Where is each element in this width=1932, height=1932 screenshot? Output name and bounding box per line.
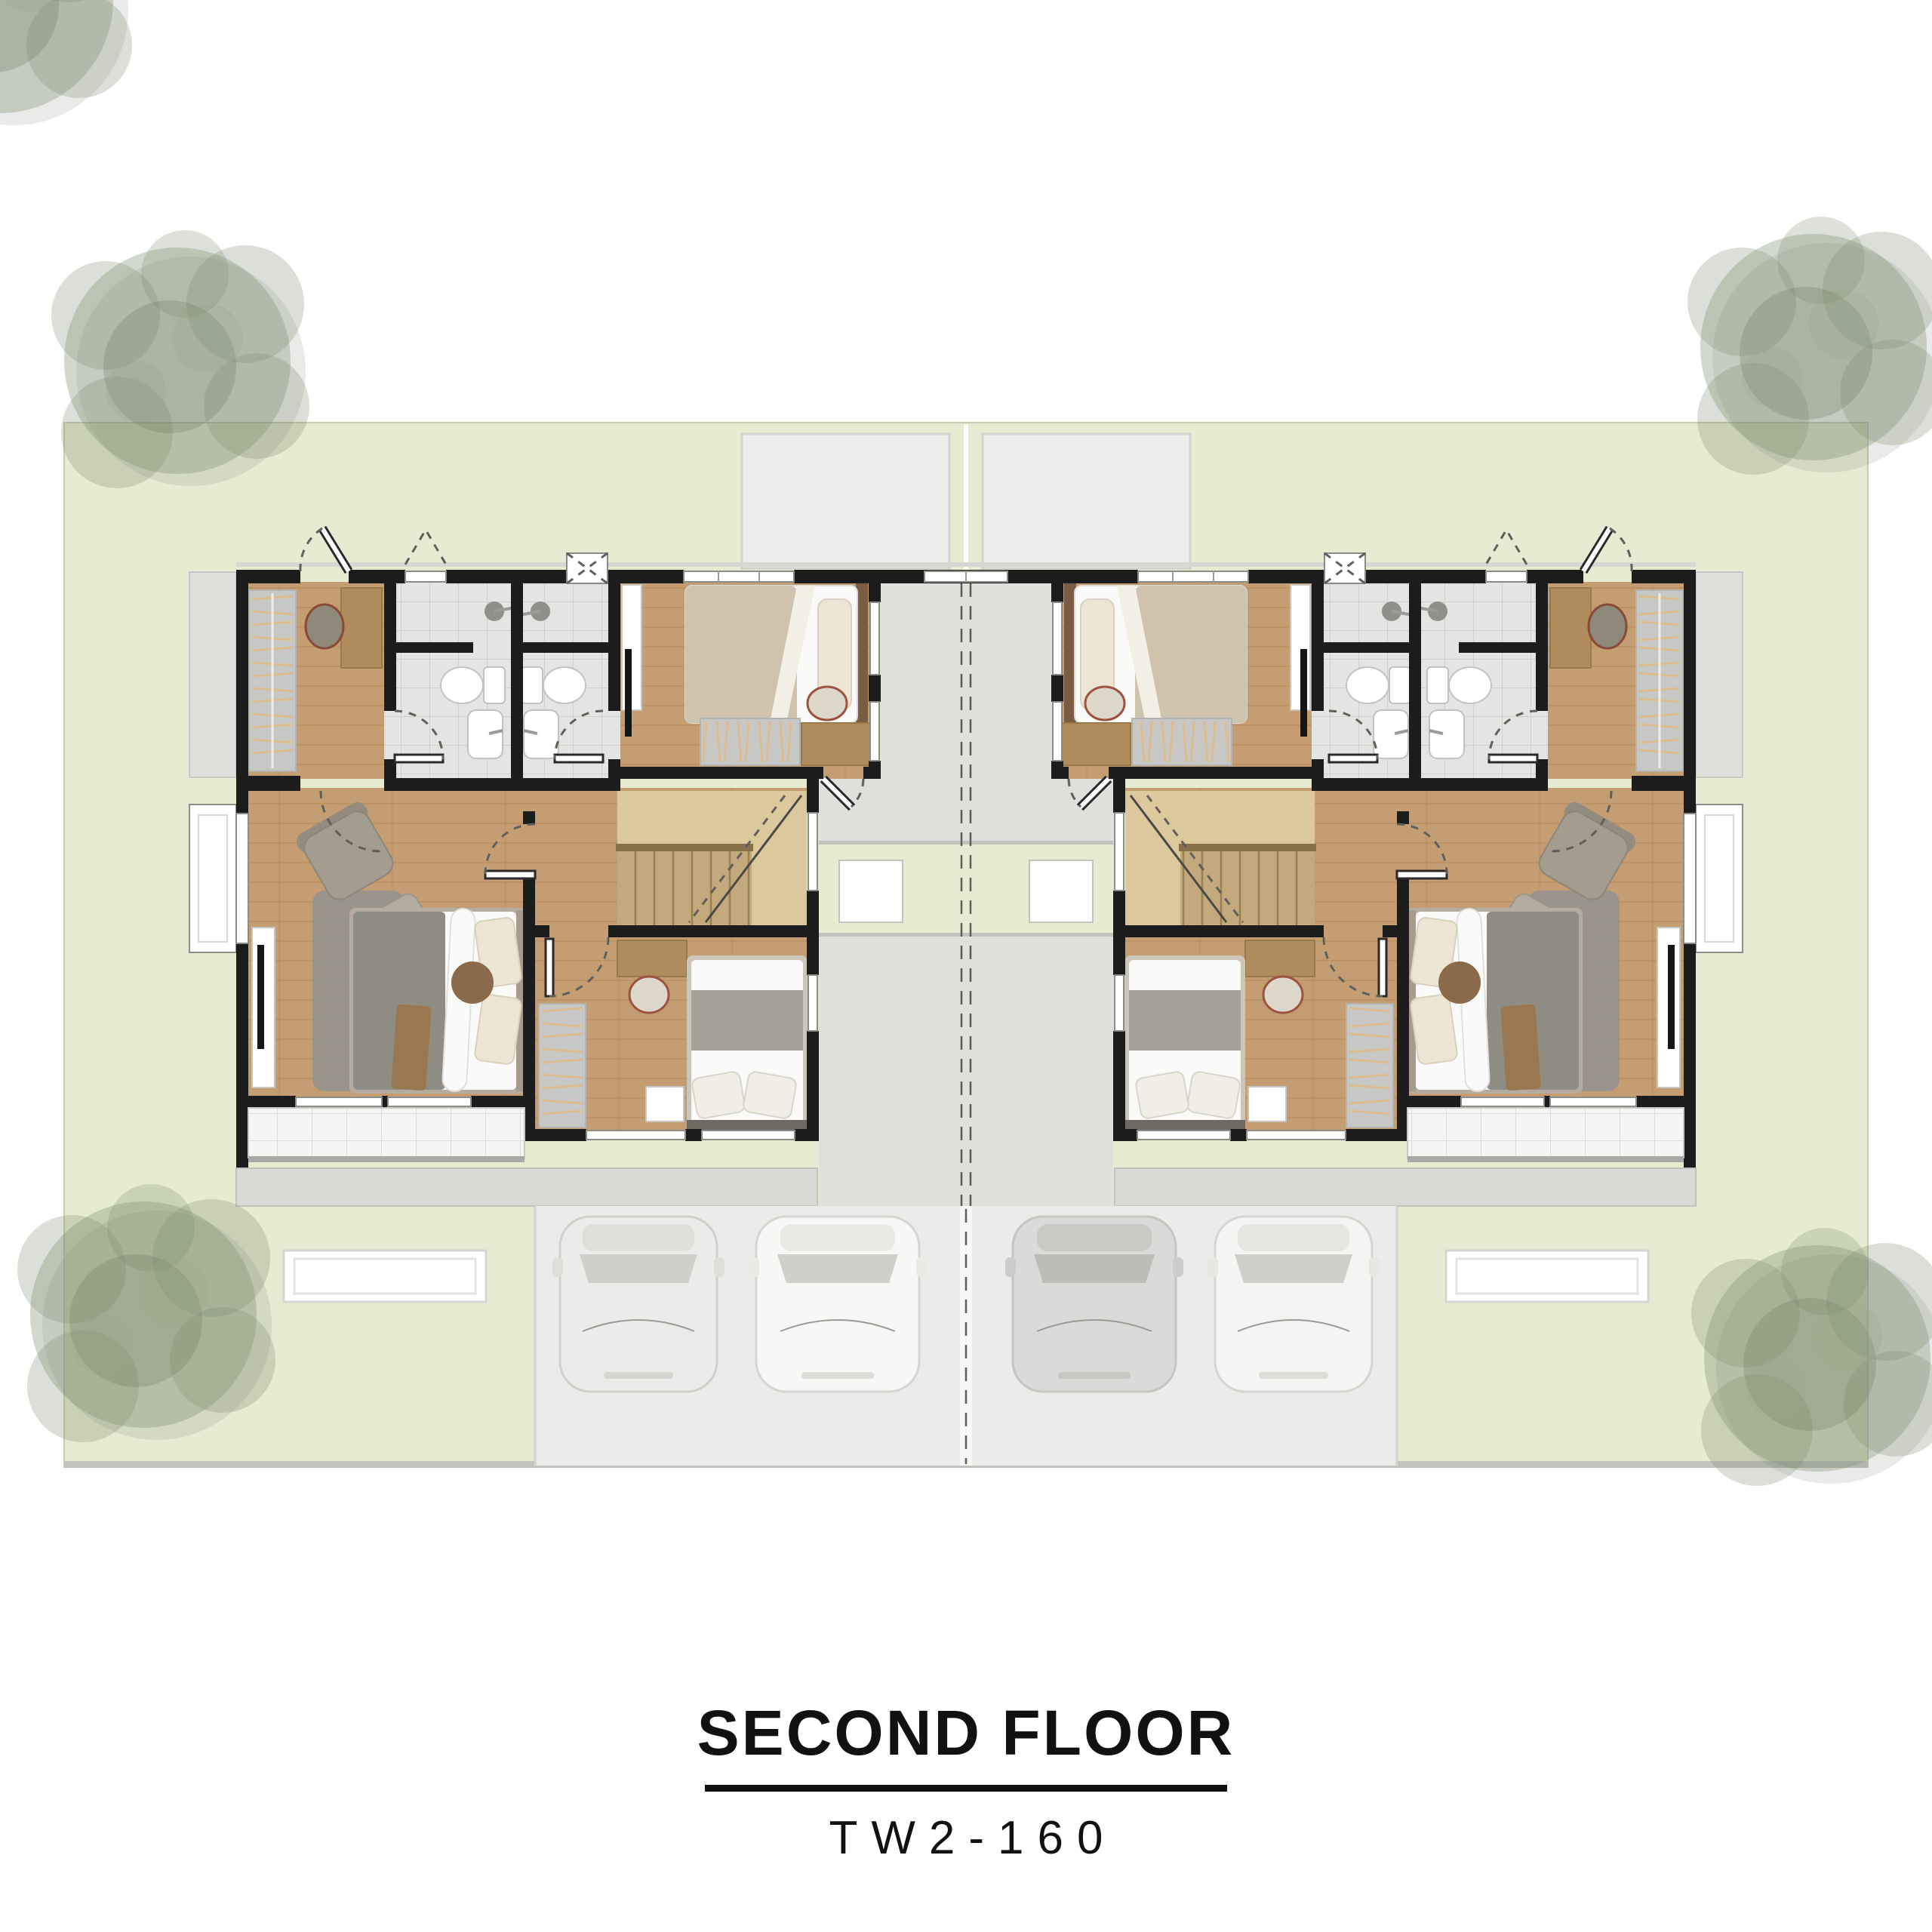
title-divider [705,1785,1227,1792]
bedroom3-wardrobe [539,1004,586,1128]
garden-planter-inner [294,1259,475,1294]
car-3 [1005,1217,1183,1392]
ground-awning [236,1168,817,1206]
stair-railing [616,844,753,851]
bedroom3-pillow-2 [743,1071,797,1119]
tree-bottom-left [17,1184,275,1442]
ac-condenser-pad-left [839,860,903,922]
tree [0,0,132,128]
bedroom3-nightstand [646,1087,684,1121]
car-2 [749,1217,927,1392]
bedroom2-side-window-1 [870,602,879,675]
master-door-leaf [485,871,535,878]
toilet-bowl-bath1 [441,667,483,703]
toilet-tank-bath2 [521,667,543,703]
master-terrace-window-1 [296,1097,382,1106]
tree-top-right [1687,217,1932,475]
entry-canopy-left [742,434,949,568]
tree-top-left [51,230,309,488]
master-terrace [248,1108,525,1158]
stair-side-window [808,813,817,891]
car-4 [1207,1217,1380,1392]
master-tv [257,945,264,1049]
master-side-window [236,814,248,943]
toilet-tank-bath1 [484,667,505,703]
car-1 [552,1217,724,1392]
bedroom3-door-leaf [546,939,553,996]
bedroom3-desk [617,940,687,977]
gap-walkway-lower [819,937,1113,1206]
plan-title: SECOND FLOOR [0,1697,1932,1770]
closet-chair [306,605,343,648]
gap-slab-edge-top [819,841,1113,844]
bath1-door-leaf [395,755,443,762]
bedroom2-side-window-2 [870,702,879,761]
bedroom3-pillow-1 [691,1071,746,1119]
floor-plan-drawing [0,0,1932,1932]
master-pillow-2 [474,994,522,1065]
bedroom3-headboard [687,1120,808,1131]
ac-condenser-pad-right [1029,860,1093,922]
side-window-bay-inner [198,815,227,942]
master-terrace-window-2 [388,1097,471,1106]
bedroom3-blanket [691,990,803,1051]
toilet-bowl-bath2 [543,667,586,703]
tree-bottom-right [1691,1228,1932,1486]
bedroom2-top-window [684,571,794,582]
bedroom2-tv [625,649,632,737]
title-block: SECOND FLOOR TW2-160 [0,1697,1932,1865]
sink-bath1 [468,710,503,758]
bedroom2-chair [808,687,847,720]
gap-walkway-mid [819,779,1113,844]
floor-plan-page: SECOND FLOOR TW2-160 [0,0,1932,1932]
terrace-rail [248,1156,525,1162]
facade-eave-line [236,562,1696,567]
bedroom3-front-window-1 [586,1131,685,1140]
side-balcony-slab [189,572,236,777]
lot-split-line-top [964,425,968,570]
bath2-door-leaf [555,755,603,762]
staircase [616,791,807,928]
closet-desk [341,588,382,668]
gap-slab-edge-bottom [819,933,1113,937]
gap-walkway-upper [881,583,1051,779]
master-throw [391,1004,432,1091]
sink-bath2 [524,710,558,758]
bedroom3-chair [629,977,669,1013]
bedroom2-wardrobe [700,718,800,765]
plan-model-code: TW2-160 [0,1811,1932,1865]
entry-canopy-right [983,434,1190,568]
bedroom3-front-window-2 [702,1131,795,1140]
bedroom3-side-window [808,975,817,1031]
master-round-cushion [451,961,494,1004]
bath1-top-window [405,571,446,582]
bedroom2-desk [801,723,871,765]
